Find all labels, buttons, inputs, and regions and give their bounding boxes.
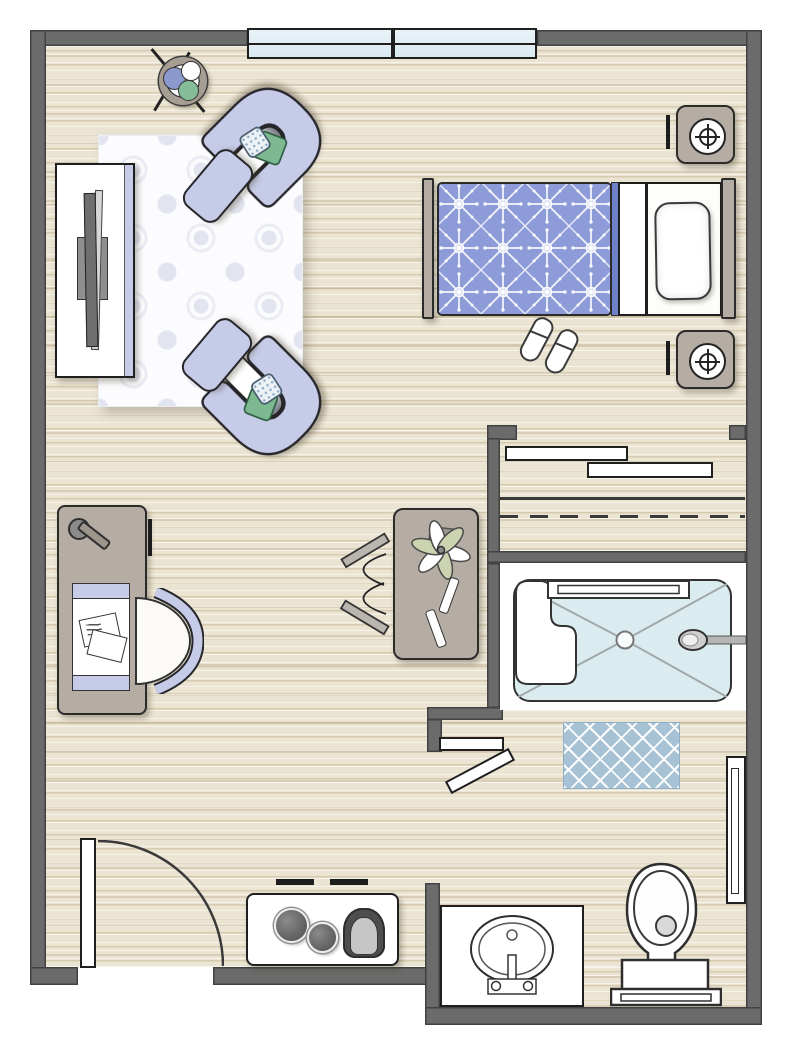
paper-2 <box>86 629 127 663</box>
tv-console-ledge <box>124 165 133 376</box>
kitchen-faucet-spout <box>350 917 378 955</box>
folding-rack <box>338 528 396 640</box>
shower-arm <box>706 636 746 644</box>
bed-pillow <box>654 202 712 301</box>
bed-blanket <box>437 182 612 316</box>
table-lamp-2-icon <box>689 343 726 380</box>
sink-drain <box>507 930 517 940</box>
shower-drain <box>617 632 634 649</box>
shower-zone <box>500 563 746 710</box>
window-1 <box>247 28 393 59</box>
nightstand-2 <box>676 330 735 389</box>
closet-shelf-1 <box>505 446 628 461</box>
sink-vanity <box>440 905 584 1007</box>
desk-chair <box>128 588 204 694</box>
burner-1 <box>274 908 309 943</box>
wall-left <box>30 30 46 985</box>
toilet-flush <box>656 916 676 936</box>
bath-mat <box>563 722 680 789</box>
table-lamp-1-icon <box>689 118 726 155</box>
wall-bathroom-west <box>487 563 500 708</box>
closet-rod-dashed <box>500 515 745 518</box>
bifold-door-panel-1 <box>439 737 504 751</box>
wall-closet-stub-right <box>729 425 746 440</box>
shower-glass-door <box>548 581 689 598</box>
burner-2 <box>307 922 338 953</box>
desk-tray <box>72 583 130 691</box>
wall-right <box>746 30 762 1025</box>
desk-sconce-mark <box>148 519 152 556</box>
bed-sheet <box>618 182 647 316</box>
cabinet-mark-2 <box>330 879 368 885</box>
cabinet-mark-1 <box>276 879 314 885</box>
wall-closet-west <box>487 438 500 563</box>
toilet-tank <box>622 960 708 990</box>
towel-bar <box>726 756 746 904</box>
wall-bath-bottom <box>425 1007 762 1025</box>
nightstand-1 <box>676 105 735 164</box>
wall-closet-bottom <box>487 551 746 563</box>
wall-bottom-left-a <box>30 967 78 985</box>
closet-rod-solid <box>500 497 745 500</box>
wall-top-left <box>30 30 248 46</box>
sconce-mark-1 <box>666 115 670 149</box>
towel-bar-rail <box>731 768 739 894</box>
kitchen-faucet <box>343 908 385 958</box>
entry-door-swing-arc <box>96 840 224 968</box>
sconce-mark-2 <box>666 341 670 375</box>
footboard <box>422 178 434 319</box>
entry-door-leaf <box>80 838 96 968</box>
wall-bottom-left-b <box>213 967 440 985</box>
potted-plant <box>404 512 476 584</box>
floor-plan <box>0 0 792 1050</box>
window-2 <box>393 28 537 59</box>
tv-console <box>55 163 135 378</box>
toilet <box>610 860 722 1007</box>
closet-shelf-2 <box>587 462 713 478</box>
wall-bath-divider <box>425 883 440 1025</box>
headboard <box>721 178 736 319</box>
wall-top-right <box>537 30 762 46</box>
kitchen-counter <box>246 893 399 966</box>
